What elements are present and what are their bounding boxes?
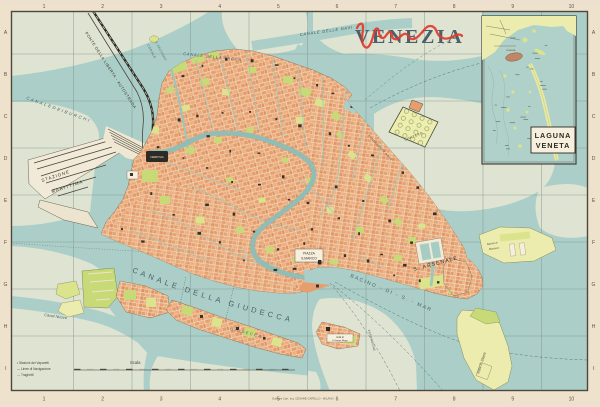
svg-text:I: I — [593, 366, 594, 372]
svg-text:10: 10 — [569, 397, 575, 403]
svg-text:9: 9 — [511, 4, 514, 10]
svg-text:— Linee di Navigazione: — Linee di Navigazione — [17, 367, 51, 371]
svg-text:4: 4 — [218, 4, 221, 10]
svg-text:--- Traghetti: --- Traghetti — [17, 373, 34, 377]
svg-text:5: 5 — [277, 4, 280, 10]
svg-text:3: 3 — [160, 4, 163, 10]
svg-text:PIAZZA: PIAZZA — [303, 252, 316, 256]
svg-text:VENEZIA: VENEZIA — [506, 49, 516, 52]
svg-text:▪ Stazioni dei Vaporetti: ▪ Stazioni dei Vaporetti — [17, 361, 49, 365]
svg-text:7: 7 — [394, 4, 397, 10]
svg-text:7: 7 — [394, 397, 397, 403]
svg-text:1: 1 — [43, 4, 46, 10]
svg-text:F: F — [4, 240, 7, 246]
svg-text:D: D — [592, 156, 596, 162]
svg-text:S.MARCO: S.MARCO — [301, 257, 317, 261]
svg-text:6: 6 — [336, 397, 339, 403]
svg-text:S.Giorgio Magg.: S.Giorgio Magg. — [332, 339, 348, 342]
svg-text:6: 6 — [336, 4, 339, 10]
svg-text:Isola di: Isola di — [336, 336, 344, 339]
svg-text:8: 8 — [453, 4, 456, 10]
svg-text:I: I — [5, 366, 6, 372]
svg-text:2: 2 — [101, 397, 104, 403]
svg-text:1: 1 — [43, 397, 46, 403]
svg-text:2: 2 — [101, 4, 104, 10]
svg-text:D: D — [4, 156, 8, 162]
svg-text:Edizioni Cart. Ing. CESARE CAP: Edizioni Cart. Ing. CESARE CAPELLO - MIL… — [272, 396, 334, 400]
svg-text:Scala: Scala — [130, 360, 141, 365]
svg-text:C: C — [592, 114, 596, 120]
svg-text:VENETA: VENETA — [536, 141, 571, 150]
svg-text:FERROVIA: FERROVIA — [150, 155, 164, 159]
svg-text:9: 9 — [511, 397, 514, 403]
svg-text:10: 10 — [569, 4, 575, 10]
svg-text:H: H — [4, 324, 8, 330]
svg-text:4: 4 — [218, 397, 221, 403]
svg-text:3: 3 — [160, 397, 163, 403]
svg-text:C: C — [4, 114, 8, 120]
svg-text:LAGUNA: LAGUNA — [535, 131, 572, 140]
svg-text:F: F — [592, 240, 595, 246]
svg-text:G: G — [592, 282, 596, 288]
svg-text:H: H — [592, 324, 596, 330]
svg-text:8: 8 — [453, 397, 456, 403]
svg-text:G: G — [4, 282, 8, 288]
